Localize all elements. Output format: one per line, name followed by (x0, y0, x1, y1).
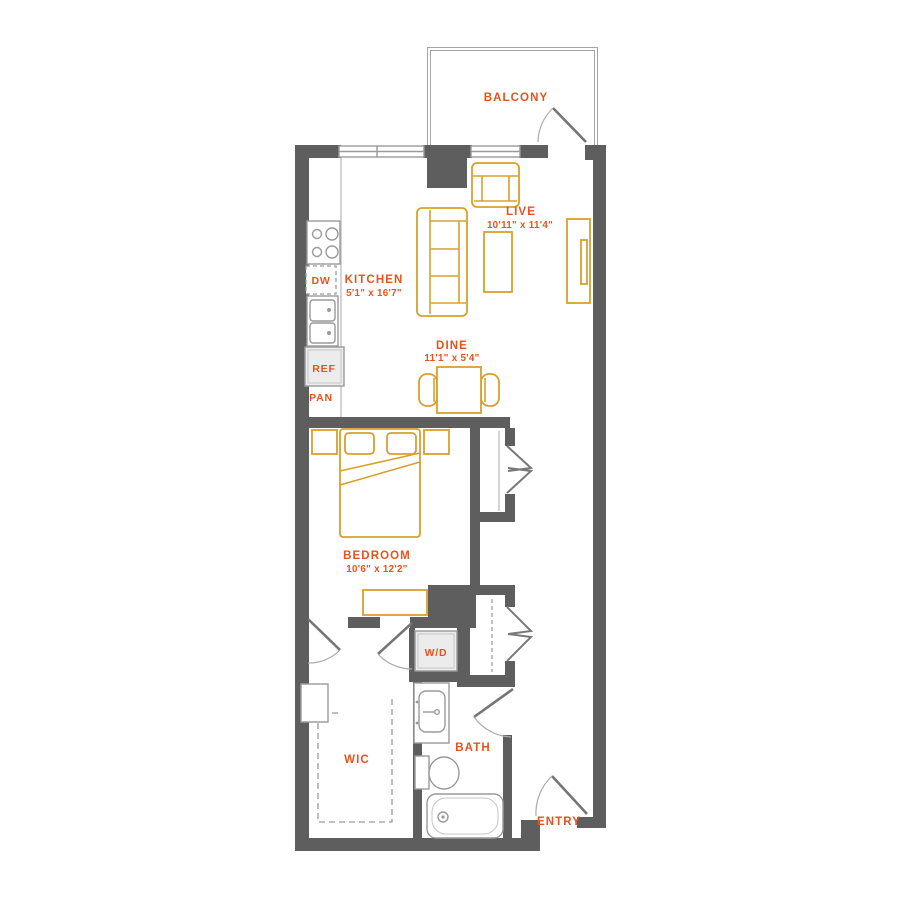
sofa-icon (417, 208, 467, 316)
dining-table-icon (437, 367, 481, 413)
pantry-label: PAN (309, 392, 333, 404)
dishwasher-label: DW (311, 275, 330, 287)
washer-dryer-label: W/D (425, 647, 448, 659)
nightstand-icon (424, 430, 449, 454)
bedroom-dims: 10'6" x 12'2" (346, 564, 407, 575)
linen-bifold-doors (507, 607, 531, 661)
floor-plan: BALCONY LIVE 10'11" x 11'4" KITCHEN 5'1"… (0, 0, 900, 900)
wic-shelf-box (301, 684, 328, 722)
kitchen-label: KITCHEN (345, 274, 404, 286)
wic-door (308, 619, 340, 663)
bathtub-icon (427, 794, 503, 838)
bath-door (474, 689, 513, 737)
bench-icon (363, 590, 427, 615)
stove-icon (307, 221, 340, 264)
toilet-icon (415, 756, 459, 789)
dine-label: DINE (436, 340, 468, 352)
closet-bifold-doors (507, 446, 531, 493)
bed-icon (340, 429, 420, 537)
nightstand-icon (312, 430, 337, 454)
balcony-door (538, 108, 586, 142)
media-console-icon (567, 219, 590, 303)
pillow-icon (345, 433, 374, 454)
dining-furniture (419, 367, 499, 413)
tv-icon (581, 240, 587, 284)
floorplan-page: BALCONY LIVE 10'11" x 11'4" KITCHEN 5'1"… (0, 0, 900, 900)
live-label: LIVE (506, 206, 536, 218)
bedroom-label: BEDROOM (343, 550, 411, 562)
kitchen-fixtures (305, 158, 344, 417)
dining-chair-icon (481, 374, 499, 406)
dine-dims: 11'1" x 5'4" (424, 353, 479, 364)
refrigerator-label: REF (312, 363, 335, 375)
balcony-label: BALCONY (484, 92, 549, 104)
column (427, 145, 467, 188)
coffee-table-icon (484, 232, 512, 292)
armchair-icon (472, 163, 519, 207)
bath-label: BATH (455, 742, 491, 754)
kitchen-sink-icon (307, 296, 338, 346)
entry-door (536, 776, 587, 816)
bath-sink-icon (414, 683, 449, 743)
live-dims: 10'11" x 11'4" (487, 220, 553, 231)
bedroom-door (378, 623, 412, 669)
pillow-icon (387, 433, 416, 454)
dining-chair-icon (419, 374, 437, 406)
entry-label: ENTRY (537, 816, 581, 828)
kitchen-dims: 5'1" x 16'7" (346, 288, 402, 299)
wic-label: WIC (344, 754, 370, 766)
